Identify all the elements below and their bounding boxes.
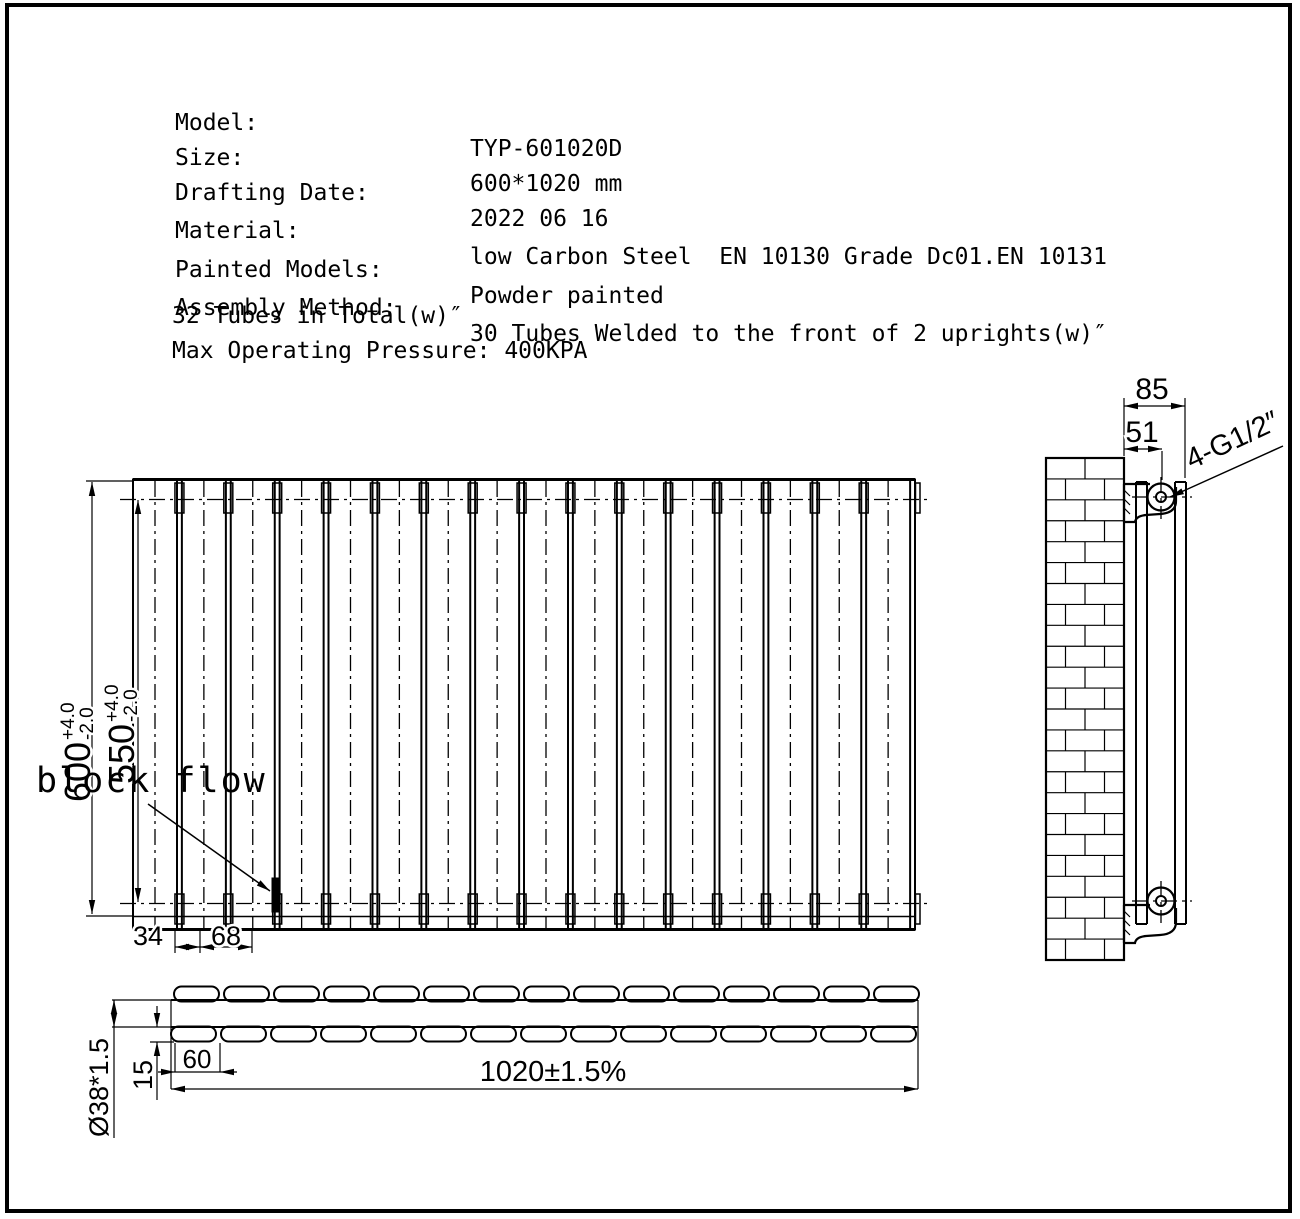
side-view: 85 51 4-G1/2″ xyxy=(1046,373,1284,960)
front-tube-oval xyxy=(621,1027,666,1042)
dim1020-text: 1020±1.5% xyxy=(480,1056,627,1088)
front-tube-oval xyxy=(821,1027,866,1042)
block-flow-leader xyxy=(148,804,270,891)
dim60-text: 60 xyxy=(183,1044,212,1074)
dim600-tol-plus: +4.0 xyxy=(58,702,79,740)
dim15-text: 15 xyxy=(128,1060,158,1090)
front-tube-row xyxy=(171,1027,916,1042)
dim550-tol-minus: -2.0 xyxy=(121,689,142,722)
right-edge-tab-bottom xyxy=(916,894,921,924)
front-tube-oval xyxy=(571,1027,616,1042)
dim600-tol-minus: -2.0 xyxy=(77,707,98,740)
front-tube-oval xyxy=(471,1027,516,1042)
drawing-sheet: Model: TYP-601020D Size: 600*1020 mm Dra… xyxy=(0,0,1300,1219)
dim38-text-group: Ø38*1.5 xyxy=(84,1038,114,1137)
dim34-text: 34 xyxy=(133,921,163,951)
front-tube-oval xyxy=(871,1027,916,1042)
back-tube-column xyxy=(1136,482,1147,924)
header-band xyxy=(171,1000,918,1027)
front-tube-oval xyxy=(171,1027,216,1042)
front-tube-oval xyxy=(421,1027,466,1042)
dim85-text: 85 xyxy=(1135,373,1168,406)
block-flow-plug xyxy=(272,878,279,912)
front-tube-oval xyxy=(321,1027,366,1042)
wall-bricks xyxy=(1046,458,1124,960)
top-view: Ø38*1.5 15 60 1020±1.5% xyxy=(84,987,919,1139)
front-tube-oval xyxy=(521,1027,566,1042)
front-view: 600 +4.0 -2.0 550 +4.0 -2.0 34 68 block … xyxy=(36,480,928,954)
front-tube-oval xyxy=(771,1027,816,1042)
dim550-tol-plus: +4.0 xyxy=(102,684,123,722)
dim68-text: 68 xyxy=(211,921,241,951)
dim38-text: Ø38*1.5 xyxy=(84,1038,114,1137)
front-tube-oval xyxy=(671,1027,716,1042)
block-flow-label: block flow xyxy=(36,761,267,801)
front-tube-oval xyxy=(271,1027,316,1042)
thread-callout: 4-G1/2″ xyxy=(1181,405,1284,476)
back-tube-tabs xyxy=(175,483,920,924)
thread-text: 4-G1/2″ xyxy=(1181,405,1284,476)
dim15-text-group: 15 xyxy=(128,1060,158,1090)
right-edge-tab-top xyxy=(916,483,921,513)
front-tube-oval xyxy=(721,1027,766,1042)
technical-drawing: 600 +4.0 -2.0 550 +4.0 -2.0 34 68 block … xyxy=(0,0,1300,1219)
dim51-text: 51 xyxy=(1125,416,1158,449)
front-tube-oval xyxy=(221,1027,266,1042)
front-tube-oval xyxy=(371,1027,416,1042)
front-tube-column xyxy=(1175,482,1186,924)
radiator-panels xyxy=(133,480,915,930)
